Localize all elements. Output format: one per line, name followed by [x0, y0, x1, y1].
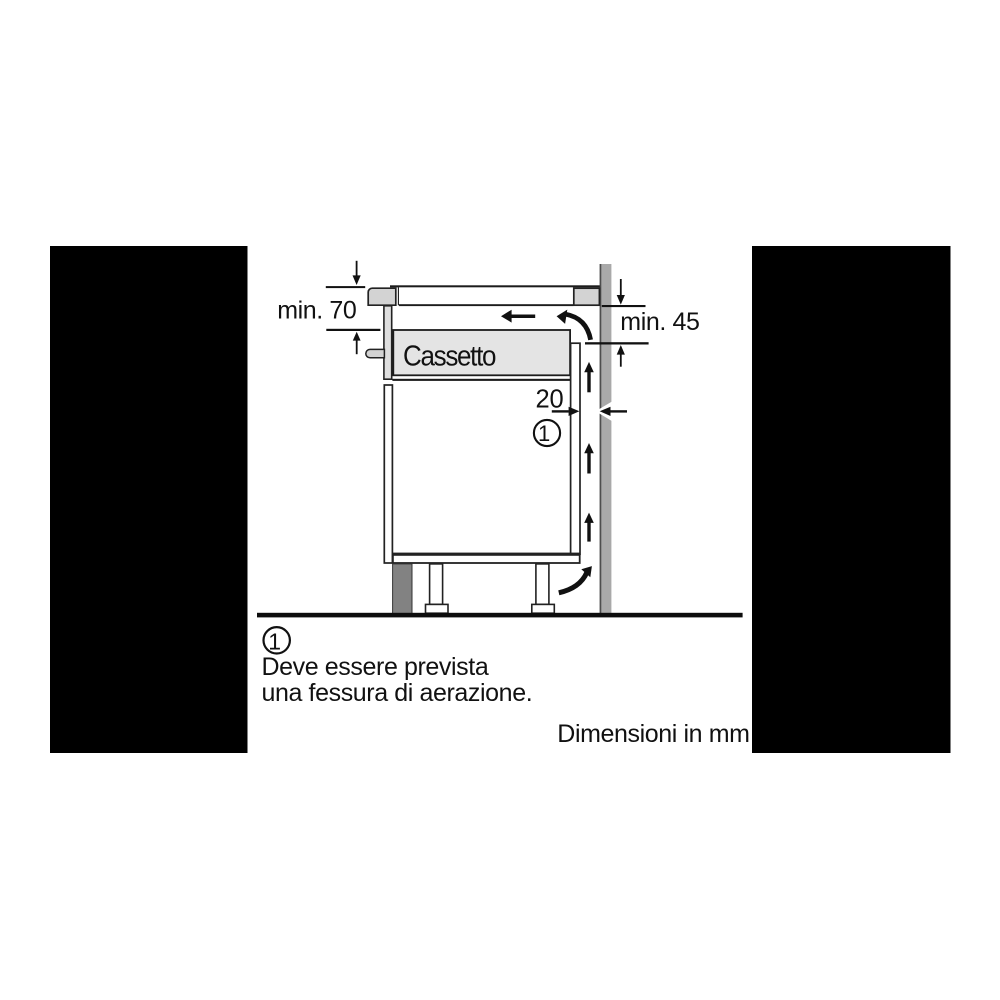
svg-text:una fessura di aerazione.: una fessura di aerazione. — [262, 679, 533, 707]
svg-text:Dimensioni in mm: Dimensioni in mm — [557, 720, 749, 748]
svg-text:1: 1 — [268, 629, 281, 655]
svg-text:min. 70: min. 70 — [277, 297, 356, 325]
svg-text:min. 45: min. 45 — [620, 308, 699, 336]
svg-text:Deve essere prevista: Deve essere prevista — [262, 653, 489, 681]
svg-text:Cassetto: Cassetto — [403, 339, 496, 372]
svg-text:1: 1 — [538, 421, 550, 446]
svg-text:20: 20 — [536, 386, 564, 414]
